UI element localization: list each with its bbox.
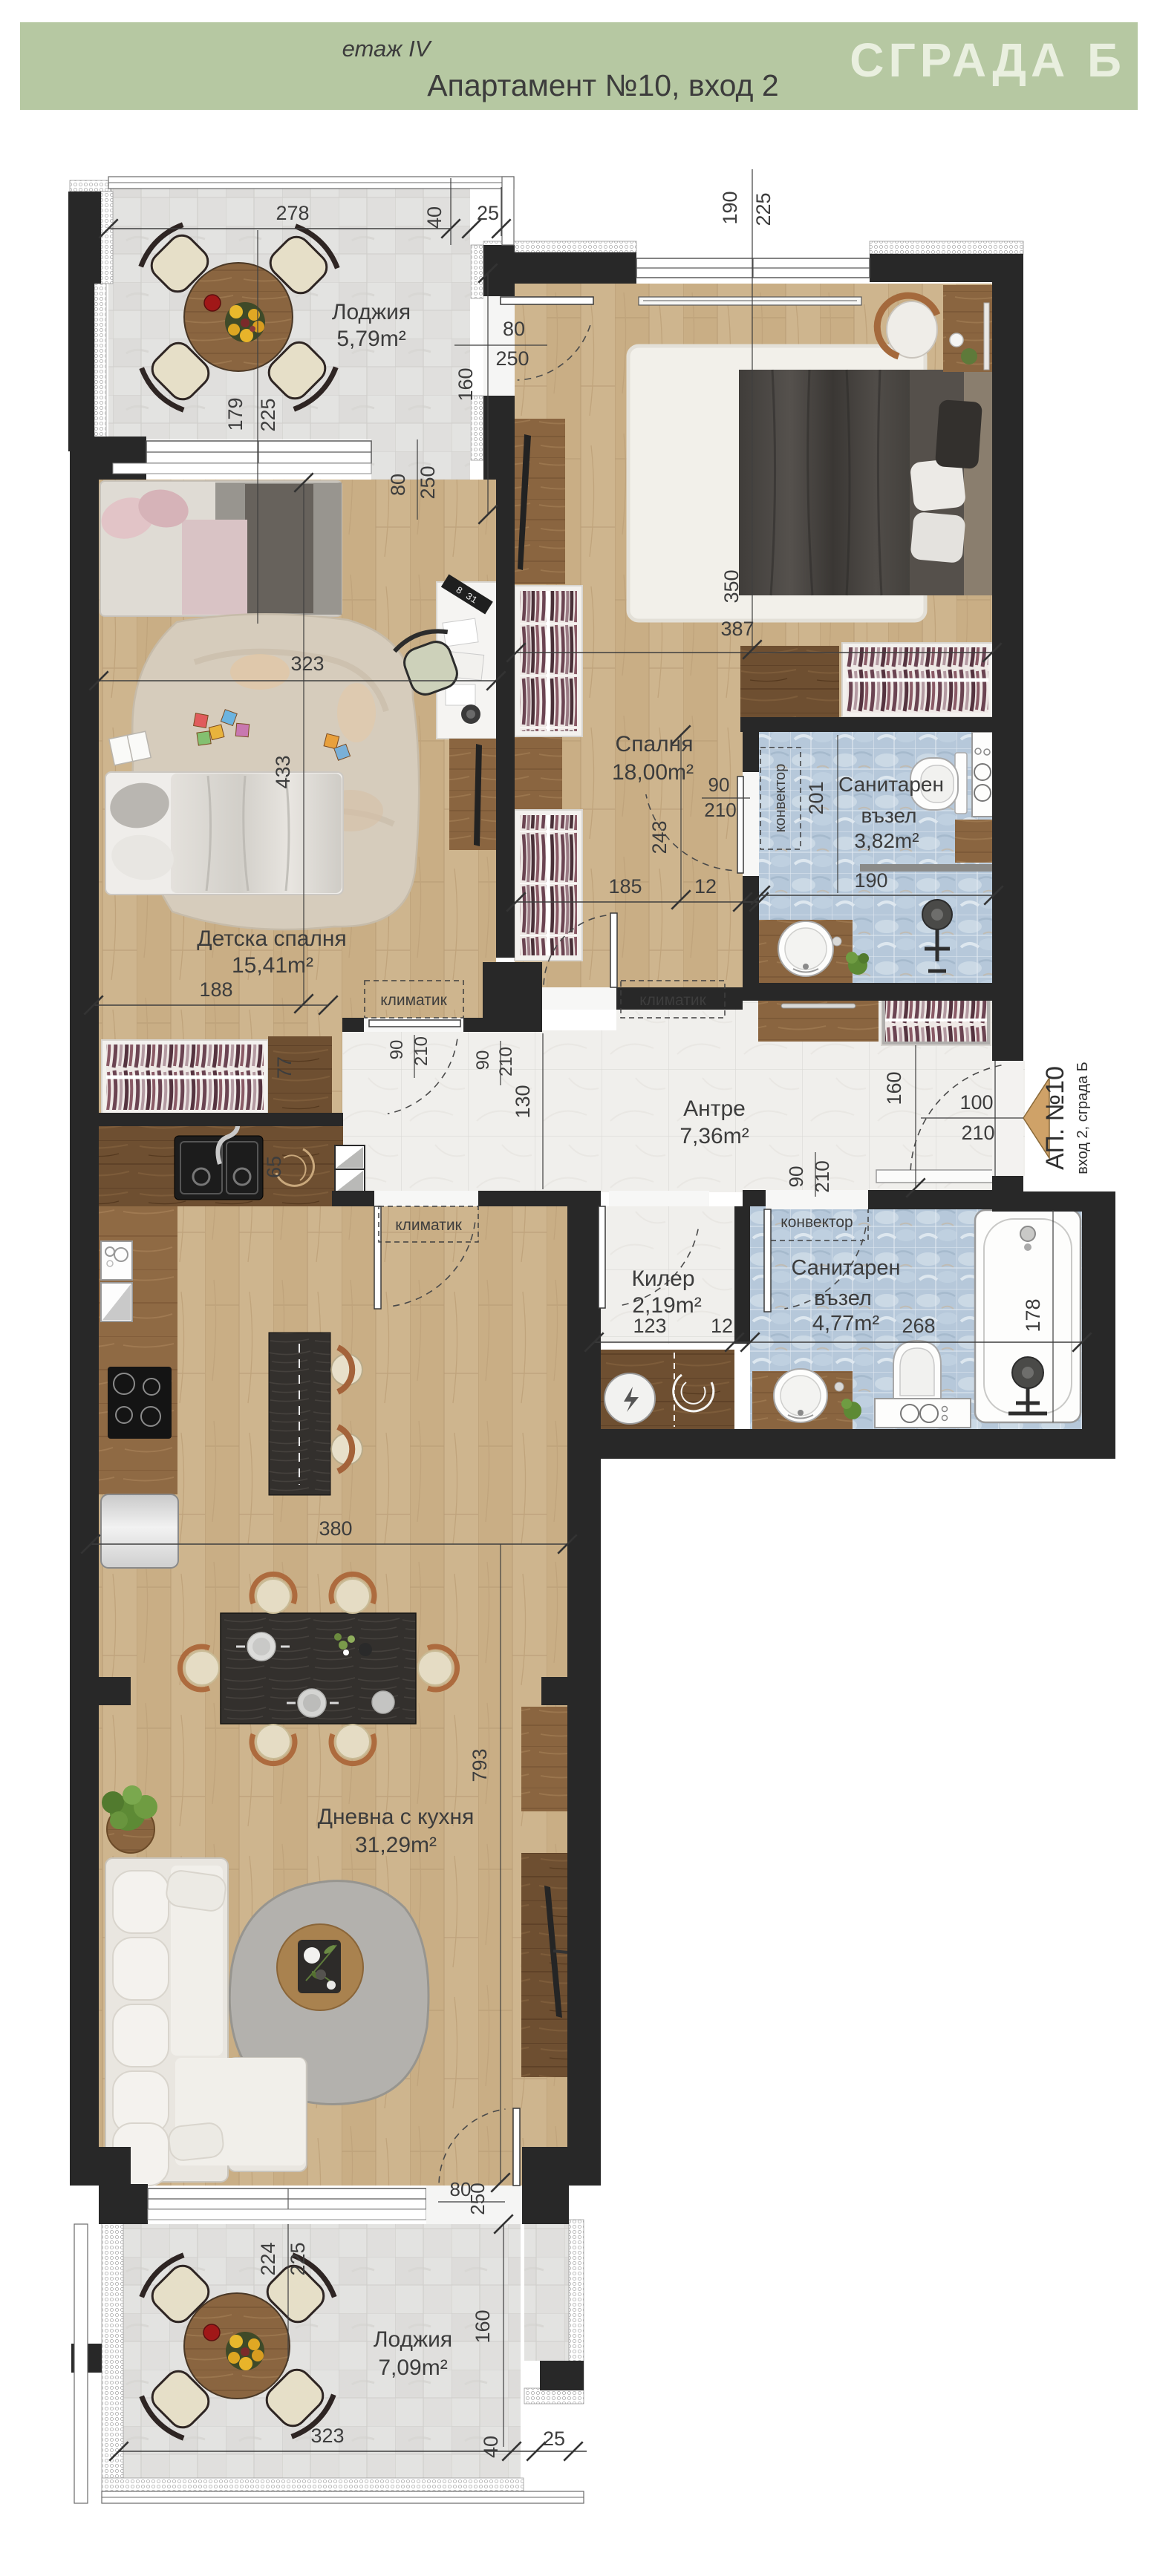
svg-text:Санитарен: Санитарен xyxy=(792,1256,901,1280)
svg-text:7,09m²: 7,09m² xyxy=(378,2356,447,2380)
svg-text:40: 40 xyxy=(423,206,446,229)
svg-text:80: 80 xyxy=(387,474,409,496)
svg-text:77: 77 xyxy=(273,1056,296,1079)
svg-text:387: 387 xyxy=(720,618,754,640)
svg-text:Килер: Килер xyxy=(631,1266,694,1291)
svg-text:190: 190 xyxy=(719,191,741,224)
svg-text:СГРАДА Б: СГРАДА Б xyxy=(850,33,1126,87)
svg-text:12: 12 xyxy=(711,1315,733,1337)
svg-text:250: 250 xyxy=(495,347,529,370)
svg-text:7,36m²: 7,36m² xyxy=(679,1124,749,1148)
svg-text:210: 210 xyxy=(961,1122,994,1144)
svg-text:90: 90 xyxy=(387,1040,407,1060)
svg-text:190: 190 xyxy=(854,869,887,892)
svg-text:Апартамент №10, вход 2: Апартамент №10, вход 2 xyxy=(427,68,778,102)
svg-text:АП. №10: АП. №10 xyxy=(1041,1066,1069,1170)
svg-text:225: 225 xyxy=(257,398,279,431)
svg-text:250: 250 xyxy=(466,2183,489,2214)
svg-text:243: 243 xyxy=(648,820,671,854)
svg-text:210: 210 xyxy=(704,799,736,821)
svg-text:268: 268 xyxy=(902,1315,935,1337)
svg-text:433: 433 xyxy=(272,755,294,788)
svg-text:80: 80 xyxy=(503,318,525,340)
svg-text:380: 380 xyxy=(319,1517,352,1540)
svg-text:възел: възел xyxy=(861,804,917,827)
svg-text:210: 210 xyxy=(411,1036,431,1066)
svg-text:Лоджия: Лоджия xyxy=(332,300,411,324)
svg-text:160: 160 xyxy=(454,367,477,401)
svg-text:2,19m²: 2,19m² xyxy=(632,1293,701,1318)
svg-text:Спалня: Спалня xyxy=(616,732,694,756)
svg-text:90: 90 xyxy=(785,1166,807,1188)
svg-text:100: 100 xyxy=(959,1091,993,1114)
svg-text:18,00m²: 18,00m² xyxy=(612,760,694,785)
svg-text:90: 90 xyxy=(708,774,730,796)
svg-text:793: 793 xyxy=(469,1748,491,1782)
svg-text:350: 350 xyxy=(720,569,743,603)
svg-text:25: 25 xyxy=(477,202,499,224)
svg-text:климатик: климатик xyxy=(639,992,706,1009)
svg-text:323: 323 xyxy=(290,653,324,675)
svg-text:Дневна с кухня: Дневна с кухня xyxy=(318,1805,475,1829)
svg-text:225: 225 xyxy=(287,2242,309,2275)
svg-text:3,82m²: 3,82m² xyxy=(854,829,919,852)
svg-text:65: 65 xyxy=(263,1156,285,1178)
svg-text:15,41m²: 15,41m² xyxy=(232,953,313,978)
svg-text:224: 224 xyxy=(257,2242,279,2275)
svg-text:Лоджия: Лоджия xyxy=(374,2327,452,2352)
svg-text:Санитарен: Санитарен xyxy=(838,773,944,796)
svg-text:климатик: климатик xyxy=(395,1217,462,1234)
svg-text:160: 160 xyxy=(472,2309,494,2343)
svg-text:90: 90 xyxy=(473,1050,493,1070)
svg-text:Детска спалня: Детска спалня xyxy=(197,926,346,951)
svg-text:31,29m²: 31,29m² xyxy=(355,1833,437,1857)
svg-text:климатик: климатик xyxy=(380,992,447,1009)
svg-text:конвектор: конвектор xyxy=(780,1214,853,1231)
svg-text:123: 123 xyxy=(633,1315,666,1337)
svg-text:40: 40 xyxy=(480,2436,502,2458)
svg-text:4,77m²: 4,77m² xyxy=(812,1312,880,1336)
svg-text:160: 160 xyxy=(883,1071,905,1105)
svg-text:25: 25 xyxy=(543,2428,565,2450)
svg-text:12: 12 xyxy=(694,875,717,898)
svg-text:вход 2, сграда Б: вход 2, сграда Б xyxy=(1075,1062,1091,1174)
svg-text:Антре: Антре xyxy=(683,1096,746,1121)
svg-text:130: 130 xyxy=(512,1085,534,1118)
svg-text:конвектор: конвектор xyxy=(772,764,789,833)
svg-text:323: 323 xyxy=(310,2425,344,2447)
svg-text:225: 225 xyxy=(752,192,775,226)
svg-text:278: 278 xyxy=(276,202,309,224)
svg-text:178: 178 xyxy=(1022,1298,1044,1332)
svg-text:210: 210 xyxy=(496,1047,516,1076)
svg-text:5,79m²: 5,79m² xyxy=(336,327,405,351)
svg-text:185: 185 xyxy=(608,875,642,898)
svg-text:201: 201 xyxy=(805,781,827,814)
svg-text:250: 250 xyxy=(417,465,439,499)
svg-text:188: 188 xyxy=(199,978,232,1001)
svg-text:етаж IV: етаж IV xyxy=(342,36,433,62)
svg-text:179: 179 xyxy=(224,397,247,431)
svg-text:възел: възел xyxy=(814,1287,872,1310)
svg-text:210: 210 xyxy=(811,1160,833,1192)
